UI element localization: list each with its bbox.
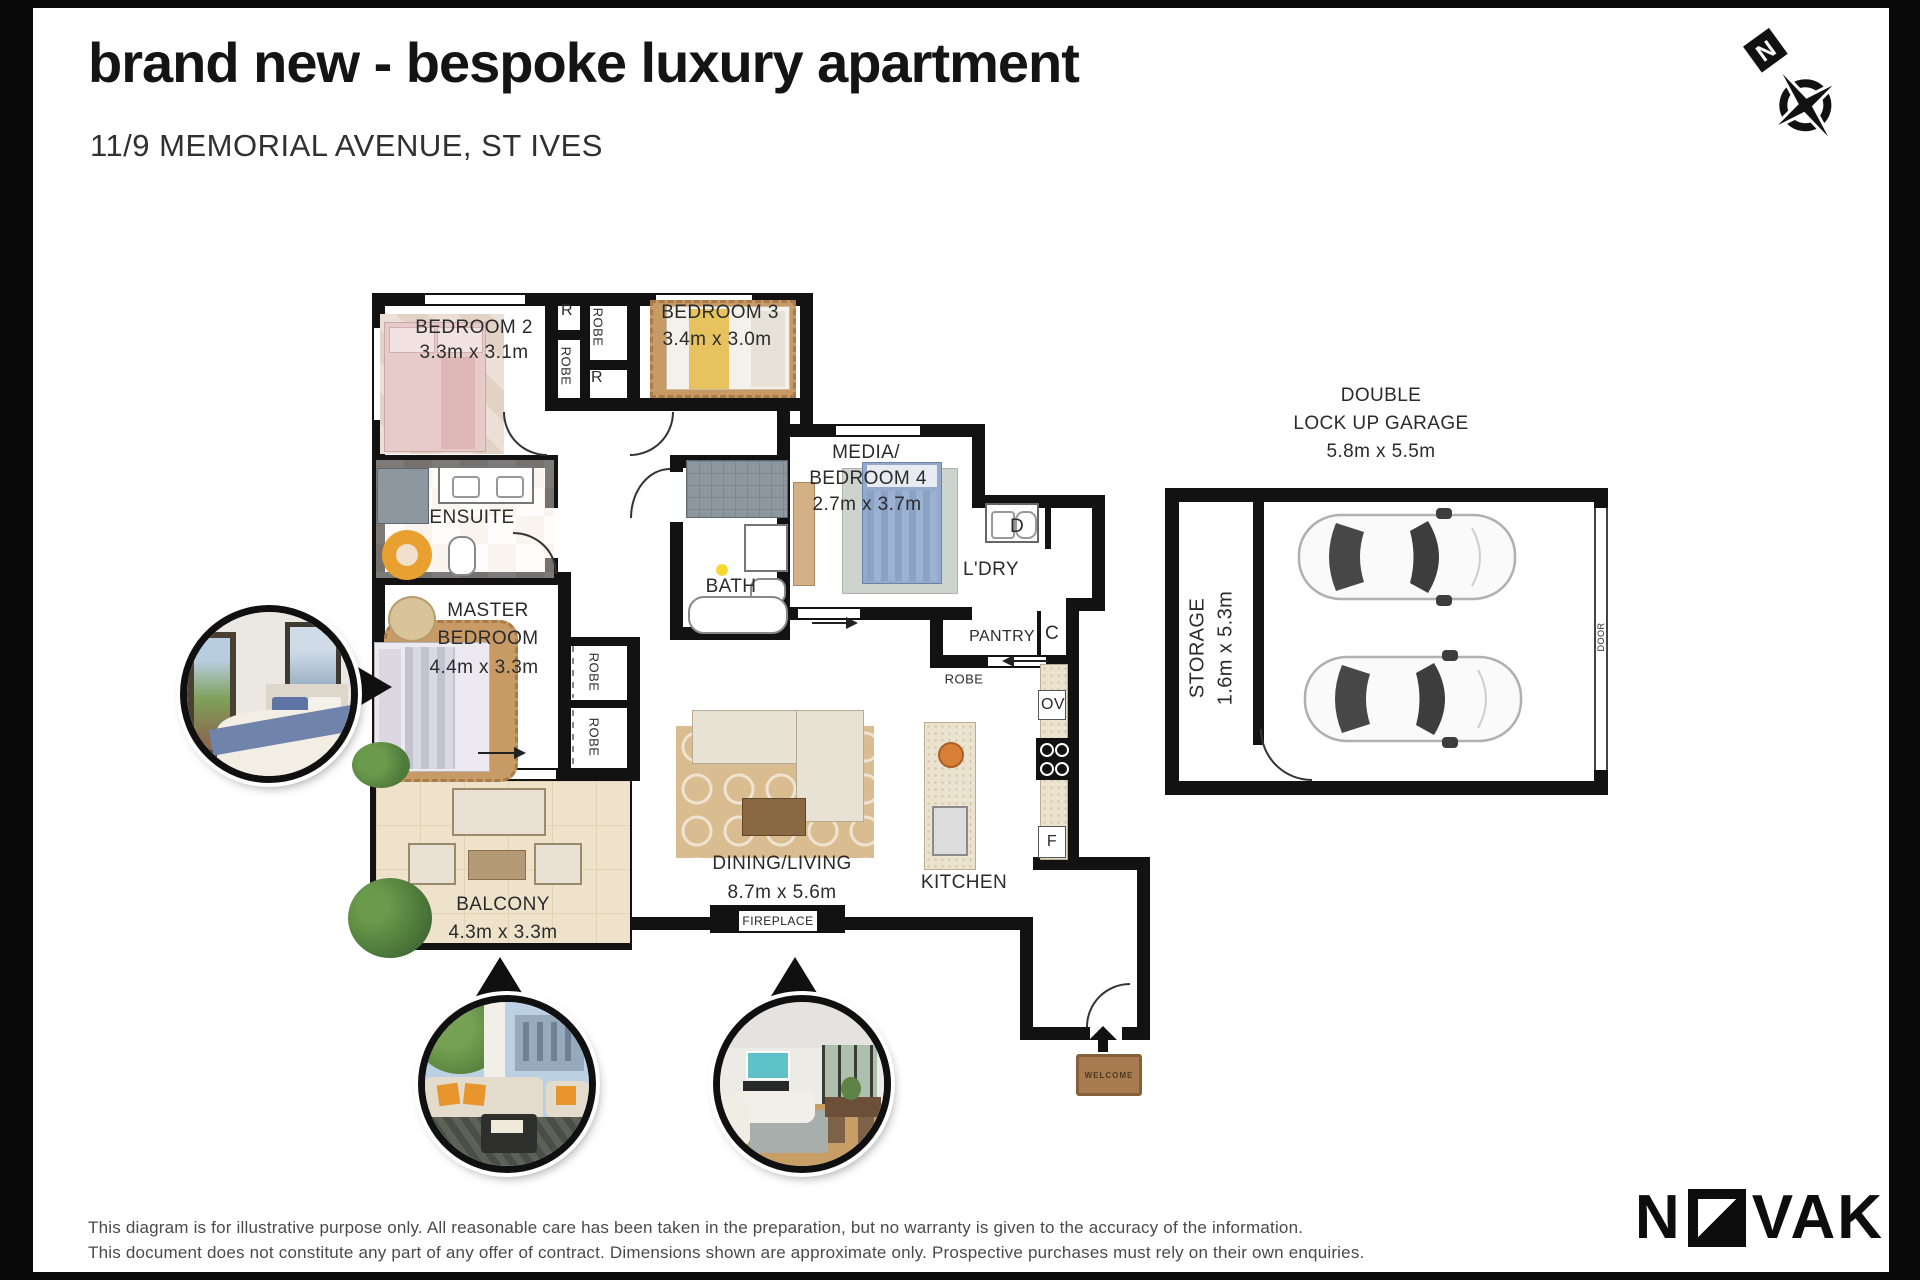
master-dims: 4.4m x 3.3m — [430, 657, 539, 679]
photo-fireplace — [743, 1081, 789, 1091]
robe-label: ROBE — [945, 672, 984, 687]
ensuite-rug — [382, 530, 432, 580]
slider-arrow-icon — [514, 747, 526, 759]
wall — [545, 293, 558, 411]
bath-door-arc — [630, 468, 670, 518]
garage-door-label: DOOR — [1596, 623, 1606, 652]
wall — [1037, 611, 1041, 657]
balcony-label: BALCONY — [456, 894, 550, 916]
slider-line — [478, 752, 518, 754]
photo-window-view — [290, 627, 336, 686]
bed-throw — [441, 357, 475, 449]
compass-north-icon: N — [1738, 20, 1868, 170]
photo-chair — [828, 1117, 844, 1143]
robe-r-label: R — [561, 302, 573, 320]
novak-logo-n: N — [1635, 1182, 1682, 1253]
sink — [496, 476, 524, 498]
plant — [352, 742, 410, 788]
wall — [558, 585, 571, 781]
storage-door-arc — [1260, 729, 1312, 781]
bath-vanity — [744, 524, 788, 572]
bedroom3-door-arc — [630, 412, 674, 456]
window — [425, 293, 525, 306]
robe-label: ROBE — [591, 308, 606, 347]
robe-r-label: R — [591, 369, 603, 387]
photo-cushion — [463, 1083, 486, 1106]
wall — [545, 330, 585, 340]
island-sink — [932, 806, 968, 856]
garage-label-1: DOUBLE — [1341, 385, 1422, 407]
robe-label: ROBE — [559, 347, 574, 386]
wall — [1165, 781, 1608, 795]
fridge-label: F — [1047, 833, 1057, 851]
cupboard-label: C — [1045, 623, 1059, 645]
coffee-table — [742, 798, 806, 836]
dining-label: DINING/LIVING — [712, 853, 851, 875]
balcony-plant — [348, 878, 432, 958]
wall — [627, 293, 640, 411]
wall — [1137, 857, 1150, 1040]
photo-cushion — [437, 1083, 461, 1107]
window — [836, 424, 920, 437]
bedroom3-dims: 3.4m x 3.0m — [663, 329, 772, 351]
ensuite-vanity — [438, 466, 534, 504]
slider-arrow-icon — [846, 617, 858, 629]
slider-line — [812, 622, 850, 624]
robe-label: ROBE — [587, 718, 602, 757]
wall — [1165, 488, 1179, 795]
balcony-dims: 4.3m x 3.3m — [449, 922, 558, 944]
photo-cushion — [556, 1086, 576, 1106]
dining-dims: 8.7m x 5.6m — [728, 882, 837, 904]
bath-shower — [686, 460, 788, 518]
garage-label-2: LOCK UP GARAGE — [1293, 413, 1468, 435]
wall — [1020, 1027, 1090, 1040]
entry-door-arc — [1086, 983, 1130, 1027]
car-top-view — [1302, 650, 1524, 748]
wall — [580, 293, 590, 404]
storage-label: STORAGE — [1187, 598, 1210, 698]
storage-dims: 1.6m x 5.3m — [1215, 591, 1238, 705]
wall — [1253, 502, 1264, 745]
media-dims: 2.7m x 3.7m — [813, 494, 922, 516]
media-label-2: BEDROOM 4 — [809, 468, 927, 490]
fireplace-label: FIREPLACE — [742, 914, 813, 928]
disclaimer-line-1: This diagram is for illustrative purpose… — [88, 1218, 1303, 1238]
garage-dims: 5.8m x 5.5m — [1327, 441, 1436, 463]
novak-logo-square-icon — [1688, 1189, 1746, 1247]
dryer-label: D — [1010, 516, 1024, 538]
ensuite-shower — [377, 468, 429, 524]
bedroom3-label: BEDROOM 3 — [661, 302, 779, 324]
robe-label: ROBE — [587, 653, 602, 692]
laundry-label: L'DRY — [963, 559, 1019, 581]
robe-rail — [572, 710, 574, 766]
disclaimer-line-2: This document does not constitute any pa… — [88, 1243, 1364, 1263]
wall — [1045, 505, 1051, 549]
kitchen-label: KITCHEN — [921, 872, 1007, 894]
ensuite-toilet — [448, 536, 476, 576]
bedroom2-dims: 3.3m x 3.1m — [420, 342, 529, 364]
oven-label: OV — [1041, 696, 1065, 714]
wall — [640, 398, 813, 411]
wall — [1092, 495, 1105, 611]
car-top-view — [1296, 508, 1518, 606]
robe-rail — [572, 646, 574, 698]
bathtub — [688, 596, 788, 634]
entry-arrow-icon — [1089, 1026, 1117, 1040]
novak-logo-vak: VAK — [1752, 1182, 1884, 1253]
cutting-board — [938, 742, 964, 768]
slider-line — [1012, 660, 1048, 662]
living-chaise — [796, 710, 864, 822]
wall — [545, 398, 640, 411]
photo-artwork — [746, 1051, 789, 1080]
media-label-1: MEDIA/ — [832, 442, 900, 464]
photo-dining-table — [825, 1097, 881, 1117]
balcony-chair — [534, 843, 582, 885]
entry-arrow-stem — [1098, 1038, 1108, 1052]
slider-arrow-icon — [1002, 655, 1014, 667]
balcony-photo — [418, 995, 596, 1173]
master-label-2: BEDROOM — [438, 628, 539, 650]
photo-tray — [491, 1120, 524, 1133]
pantry-label: PANTRY — [969, 628, 1035, 646]
wall — [1165, 488, 1608, 502]
master-bedroom-photo — [180, 605, 358, 783]
bedroom2-label: BEDROOM 2 — [415, 317, 533, 339]
door-gap — [670, 472, 683, 522]
balcony-sofa — [452, 788, 546, 836]
cooktop — [1036, 738, 1070, 780]
bedroom2-door-arc — [503, 412, 547, 456]
photo-building-windows — [523, 1022, 572, 1061]
wall — [1020, 930, 1033, 1040]
bath-label: BATH — [706, 576, 757, 598]
ensuite-label: ENSUITE — [429, 507, 514, 529]
wall — [1122, 1027, 1150, 1040]
balcony-chair — [408, 843, 456, 885]
balcony-table — [468, 850, 526, 880]
welcome-mat: WELCOME — [1085, 1071, 1134, 1080]
photo-chair — [858, 1117, 874, 1143]
wall — [627, 637, 640, 781]
master-label-1: MASTER — [447, 600, 529, 622]
living-room-photo — [713, 995, 891, 1173]
sink — [452, 476, 480, 498]
novak-logo: N VAK — [1635, 1182, 1884, 1253]
master-chair — [388, 596, 436, 642]
